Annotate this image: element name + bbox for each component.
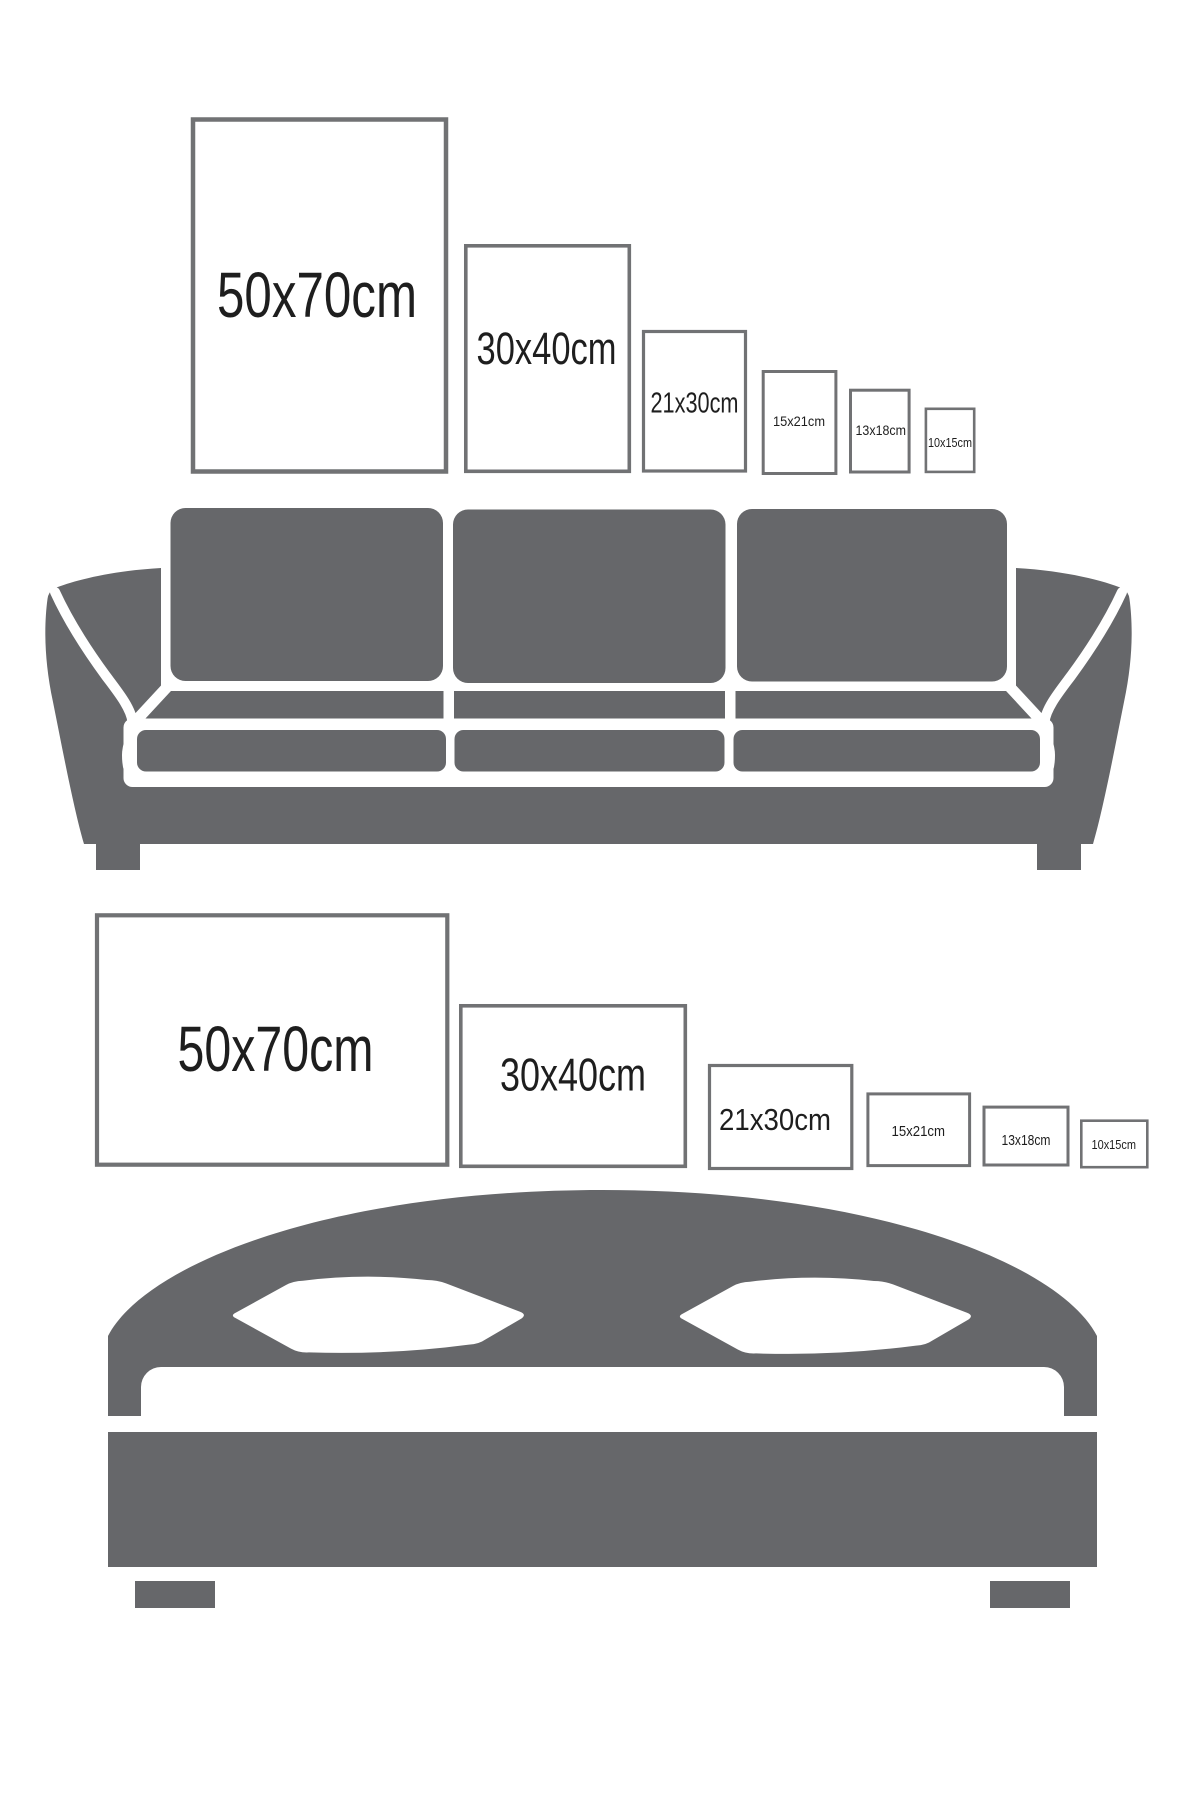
svg-text:15x21cm: 15x21cm <box>773 413 825 429</box>
svg-text:50x70cm: 50x70cm <box>217 259 417 331</box>
svg-text:50x70cm: 50x70cm <box>178 1013 374 1085</box>
svg-text:15x21cm: 15x21cm <box>892 1124 946 1140</box>
svg-text:13x18cm: 13x18cm <box>1002 1132 1051 1149</box>
svg-text:21x30cm: 21x30cm <box>719 1102 831 1137</box>
svg-text:13x18cm: 13x18cm <box>856 422 907 438</box>
svg-text:30x40cm: 30x40cm <box>500 1049 646 1101</box>
svg-text:10x15cm: 10x15cm <box>928 436 972 450</box>
svg-text:30x40cm: 30x40cm <box>477 323 617 374</box>
svg-text:10x15cm: 10x15cm <box>1092 1138 1137 1152</box>
svg-text:21x30cm: 21x30cm <box>651 388 739 420</box>
